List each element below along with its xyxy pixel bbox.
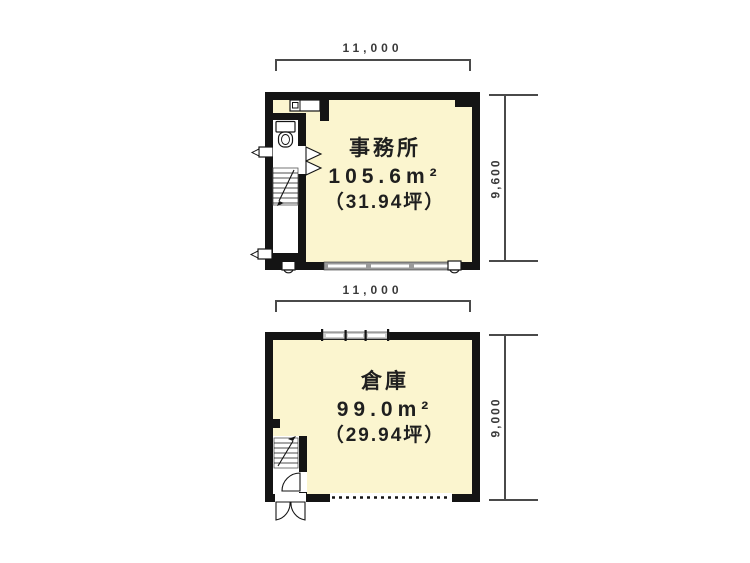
- office-width-dimension-line: [275, 59, 471, 71]
- warehouse-room-name: 倉庫: [278, 371, 492, 392]
- warehouse-width-dimension-label: 11,000: [265, 283, 480, 297]
- warehouse-height-dim-tick: [489, 499, 538, 501]
- warehouse-width-dimension-line: [275, 300, 471, 312]
- office-height-dim-tick: [489, 260, 538, 262]
- office-room-name: 事務所: [278, 138, 492, 159]
- warehouse-area-tsubo: （29.94坪）: [278, 426, 492, 445]
- office-height-dim-tick: [489, 94, 538, 96]
- warehouse-height-dim-tick: [489, 334, 538, 336]
- office-area-m2: 105.6m²: [278, 166, 492, 187]
- warehouse-height-dimension-line: [504, 334, 506, 501]
- office-width-dimension-label: 11,000: [265, 41, 480, 55]
- warehouse-area-m2: 99.0m²: [278, 399, 492, 420]
- floorplan-page: 11,000: [0, 0, 750, 563]
- office-area-tsubo: （31.94坪）: [278, 193, 492, 212]
- office-text-block: 事務所 105.6m² （31.94坪）: [278, 138, 492, 212]
- office-height-dimension-line: [504, 94, 506, 262]
- warehouse-text-block: 倉庫 99.0m² （29.94坪）: [278, 371, 492, 445]
